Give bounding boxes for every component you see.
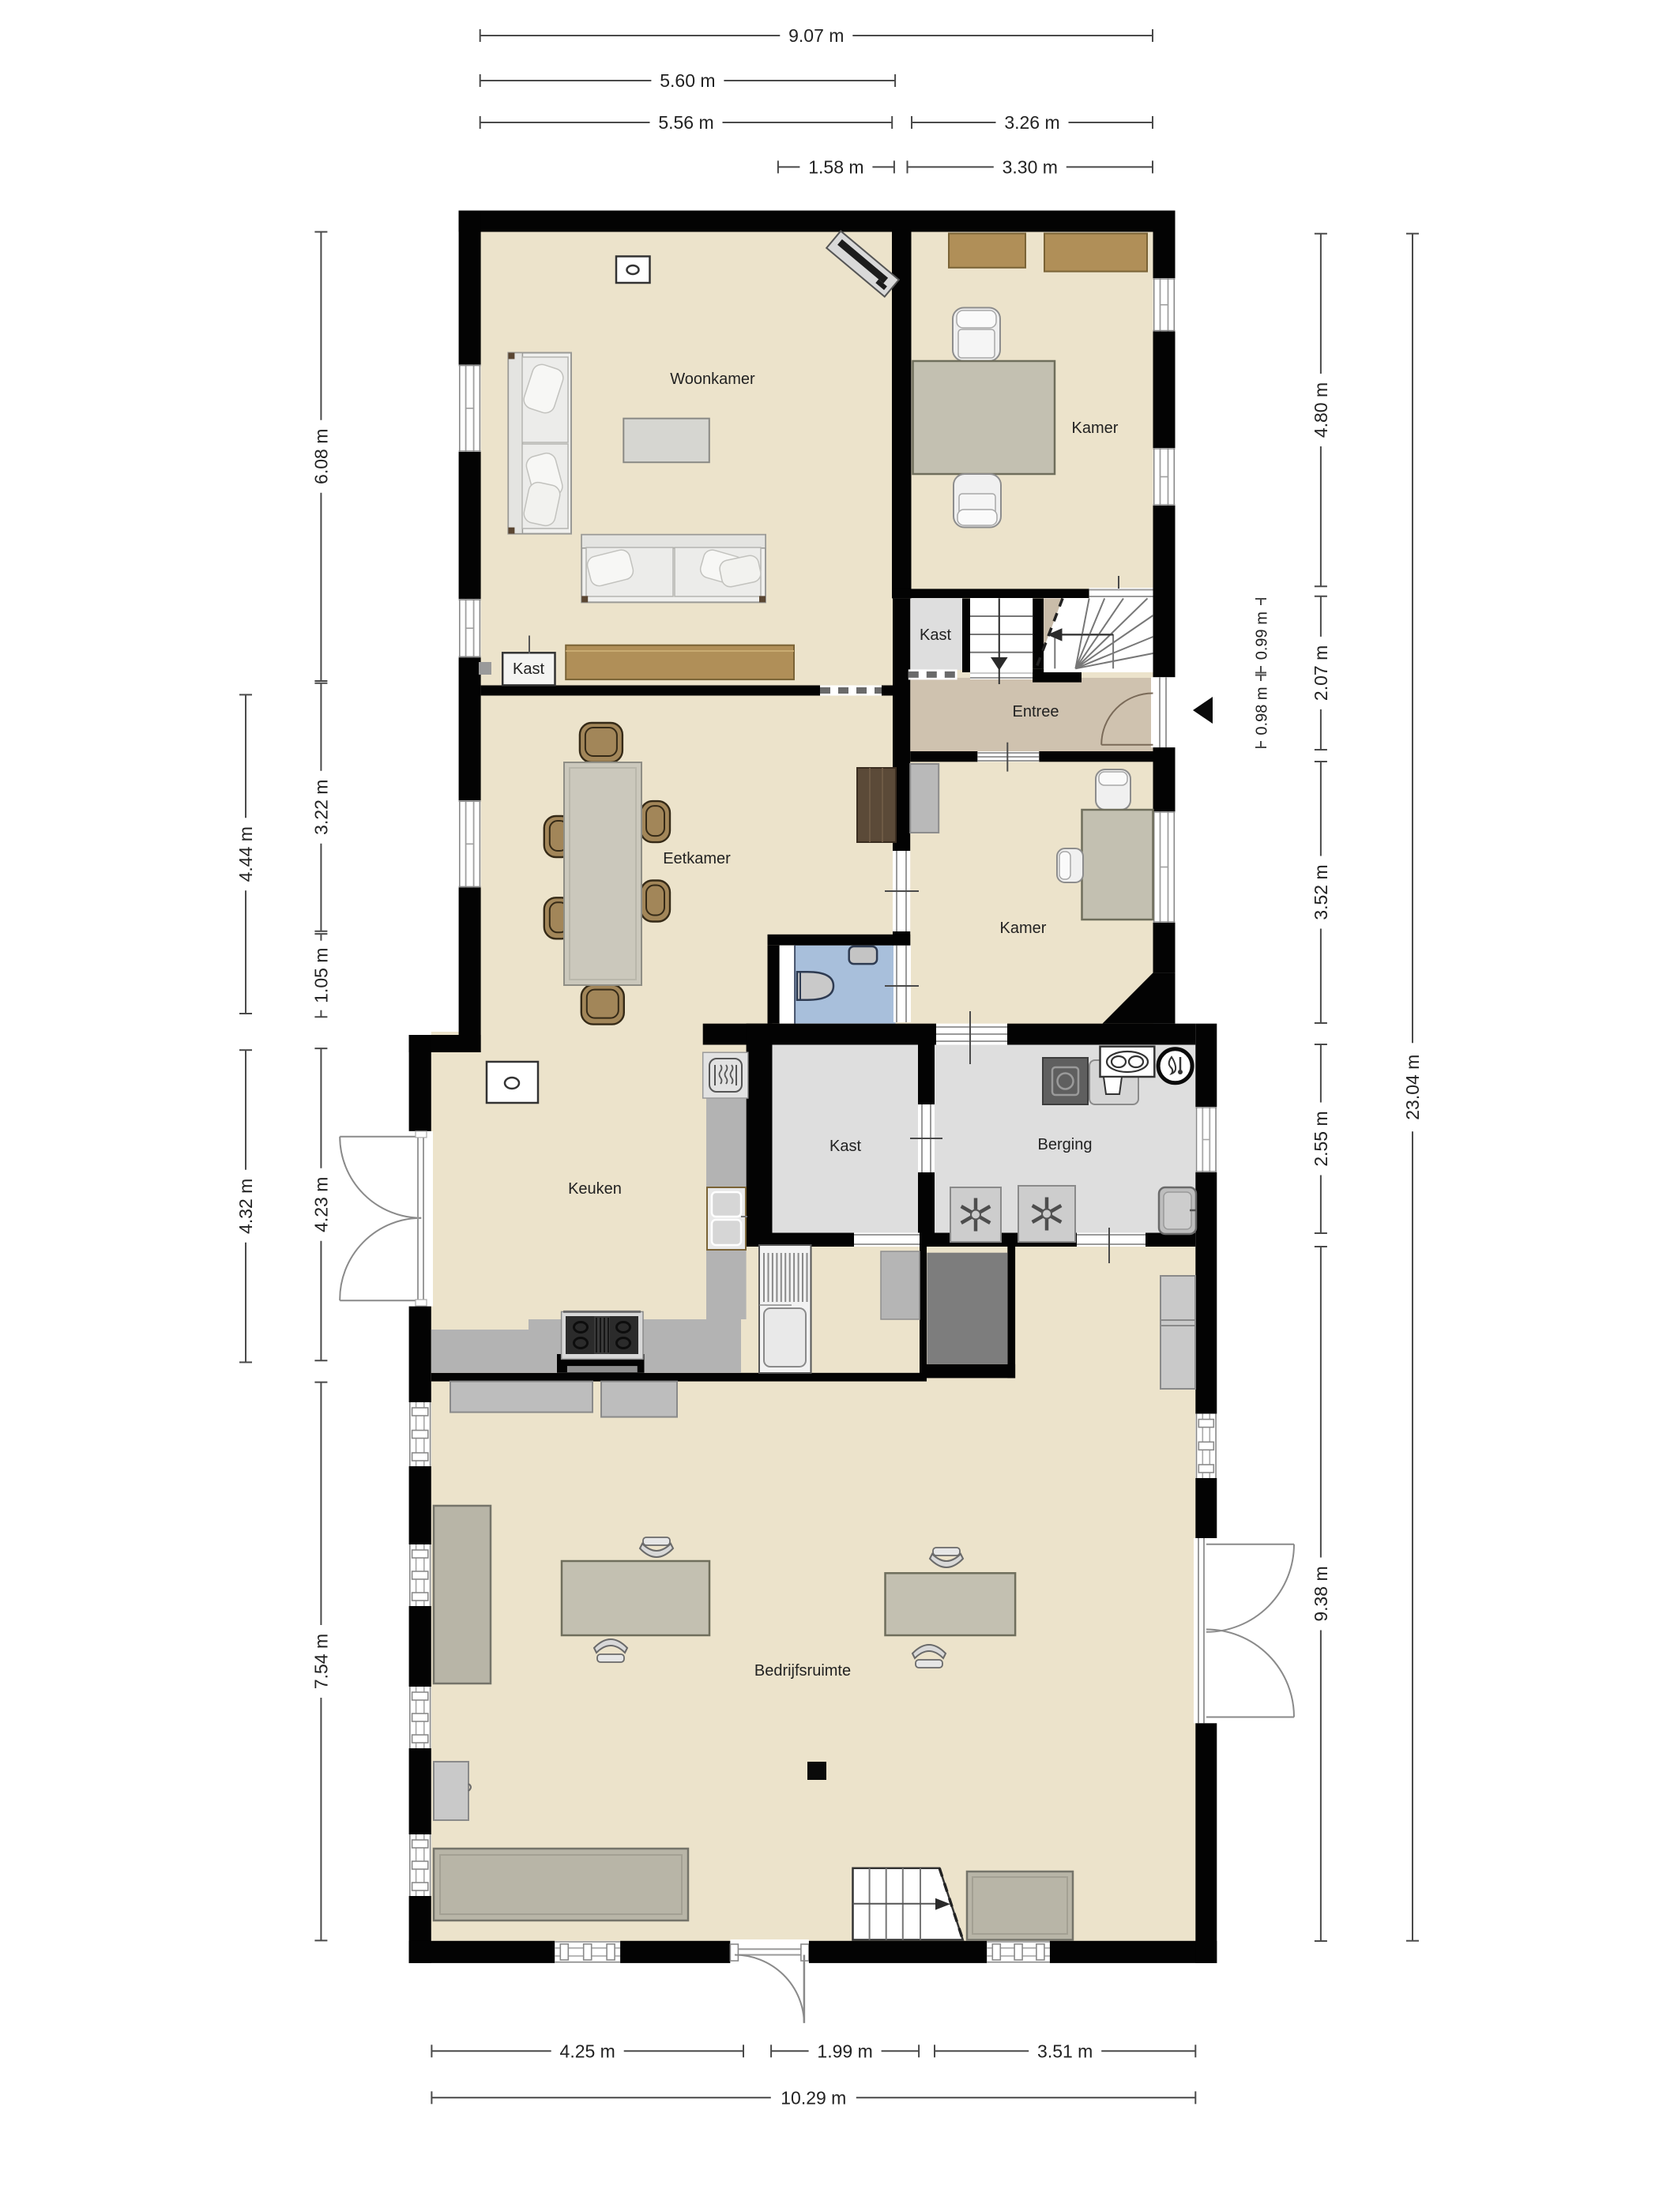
svg-text:Berging: Berging <box>1038 1136 1093 1153</box>
svg-text:7.54 m: 7.54 m <box>310 1634 331 1689</box>
svg-text:1.58 m: 1.58 m <box>808 156 863 177</box>
svg-text:4.32 m: 4.32 m <box>235 1179 256 1234</box>
svg-text:Eetkamer: Eetkamer <box>663 850 731 867</box>
svg-text:Kast: Kast <box>513 660 544 678</box>
svg-text:4.23 m: 4.23 m <box>310 1177 331 1232</box>
svg-text:Kast: Kast <box>920 626 951 644</box>
svg-text:4.44 m: 4.44 m <box>235 826 256 882</box>
svg-text:3.52 m: 3.52 m <box>1311 864 1331 920</box>
svg-text:2.55 m: 2.55 m <box>1311 1111 1331 1166</box>
svg-text:3.22 m: 3.22 m <box>310 780 331 835</box>
svg-text:Kast: Kast <box>829 1138 861 1155</box>
svg-text:Kamer: Kamer <box>1000 920 1047 937</box>
svg-text:5.56 m: 5.56 m <box>658 112 713 133</box>
svg-text:1.99 m: 1.99 m <box>817 2041 872 2061</box>
svg-text:3.26 m: 3.26 m <box>1004 112 1059 133</box>
svg-text:9.07 m: 9.07 m <box>788 25 844 46</box>
svg-text:Keuken: Keuken <box>568 1180 622 1198</box>
svg-text:10.29 m: 10.29 m <box>781 2087 846 2108</box>
svg-text:0.99 m: 0.99 m <box>1254 611 1271 660</box>
svg-text:Entree: Entree <box>1013 703 1059 720</box>
svg-text:2.07 m: 2.07 m <box>1311 645 1331 701</box>
svg-text:3.30 m: 3.30 m <box>1003 156 1058 177</box>
svg-text:Woonkamer: Woonkamer <box>670 371 755 388</box>
svg-text:4.25 m: 4.25 m <box>560 2041 615 2061</box>
svg-text:Kamer: Kamer <box>1072 419 1119 437</box>
svg-text:Bedrijfsruimte: Bedrijfsruimte <box>754 1662 851 1680</box>
svg-text:1.05 m: 1.05 m <box>310 948 331 1003</box>
svg-text:6.08 m: 6.08 m <box>310 429 331 484</box>
svg-text:4.80 m: 4.80 m <box>1311 382 1331 438</box>
svg-text:0.98 m: 0.98 m <box>1254 687 1271 735</box>
svg-text:23.04 m: 23.04 m <box>1402 1055 1423 1120</box>
svg-text:3.51 m: 3.51 m <box>1037 2041 1093 2061</box>
svg-text:5.60 m: 5.60 m <box>660 70 715 91</box>
svg-text:9.38 m: 9.38 m <box>1311 1566 1331 1621</box>
